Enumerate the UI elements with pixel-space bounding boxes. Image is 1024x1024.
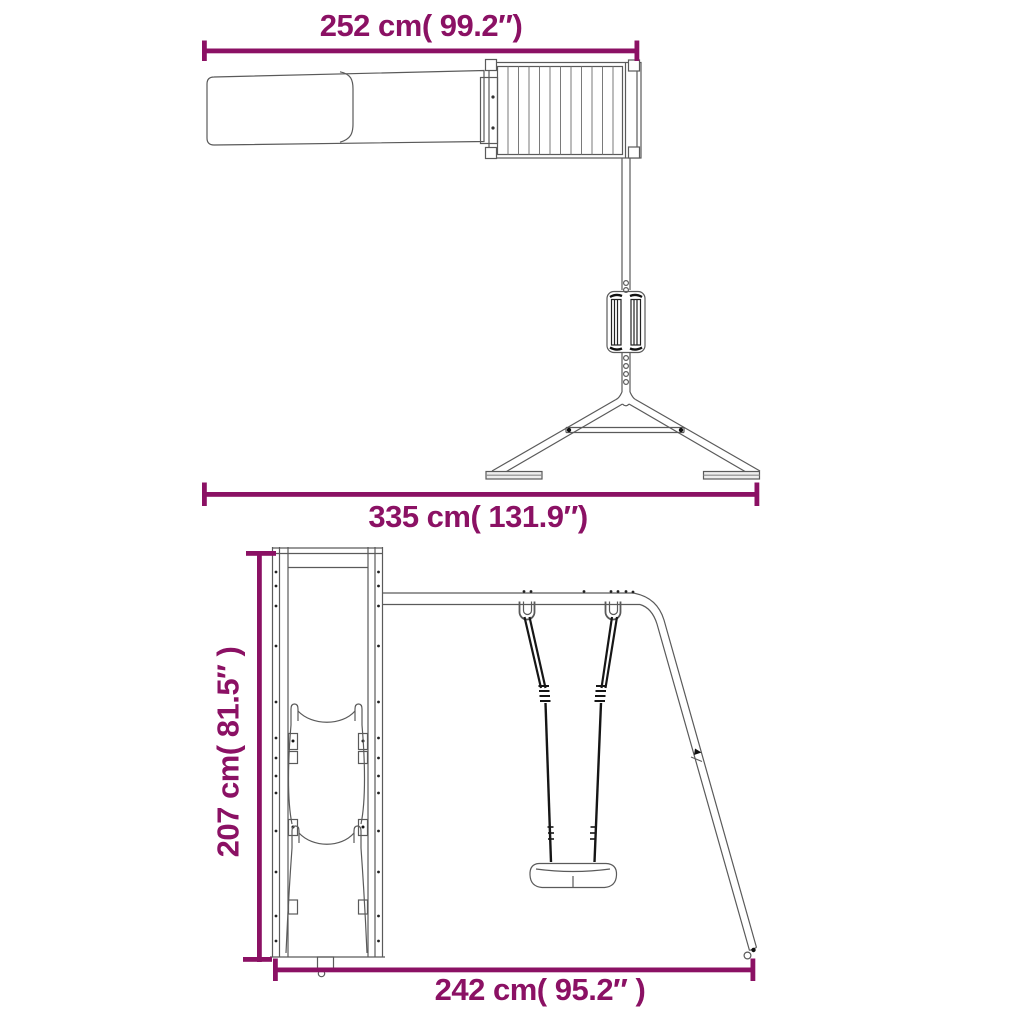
- swing-frame-front: [383, 590, 757, 959]
- swing-front: [525, 617, 618, 888]
- dimension-line-depth: [202, 41, 639, 62]
- swing-seat-front: [530, 864, 617, 888]
- tower-front: [270, 547, 385, 977]
- plan-view: [207, 60, 760, 480]
- slide-front: [286, 704, 367, 953]
- dimension-label-base-width: 242 cm( 95.2″ ): [435, 974, 646, 1005]
- slide-plan: [207, 71, 498, 146]
- diagram-page: 252 cm( 99.2″) 335 cm( 131.9″) 207 cm( 8…: [0, 0, 1024, 1024]
- dimension-label-height: 207 cm( 81.5″ ): [213, 647, 244, 858]
- dimension-line-height: [243, 551, 276, 962]
- swing-beam-plan: [622, 158, 630, 392]
- platform-plan: [486, 60, 642, 159]
- anchor-legs-plan: [486, 392, 760, 479]
- dimension-label-depth: 252 cm( 99.2″): [320, 10, 523, 41]
- swing-seat-plan: [607, 292, 645, 353]
- dimension-label-overall-width: 335 cm( 131.9″): [368, 501, 587, 532]
- front-view: [270, 547, 757, 977]
